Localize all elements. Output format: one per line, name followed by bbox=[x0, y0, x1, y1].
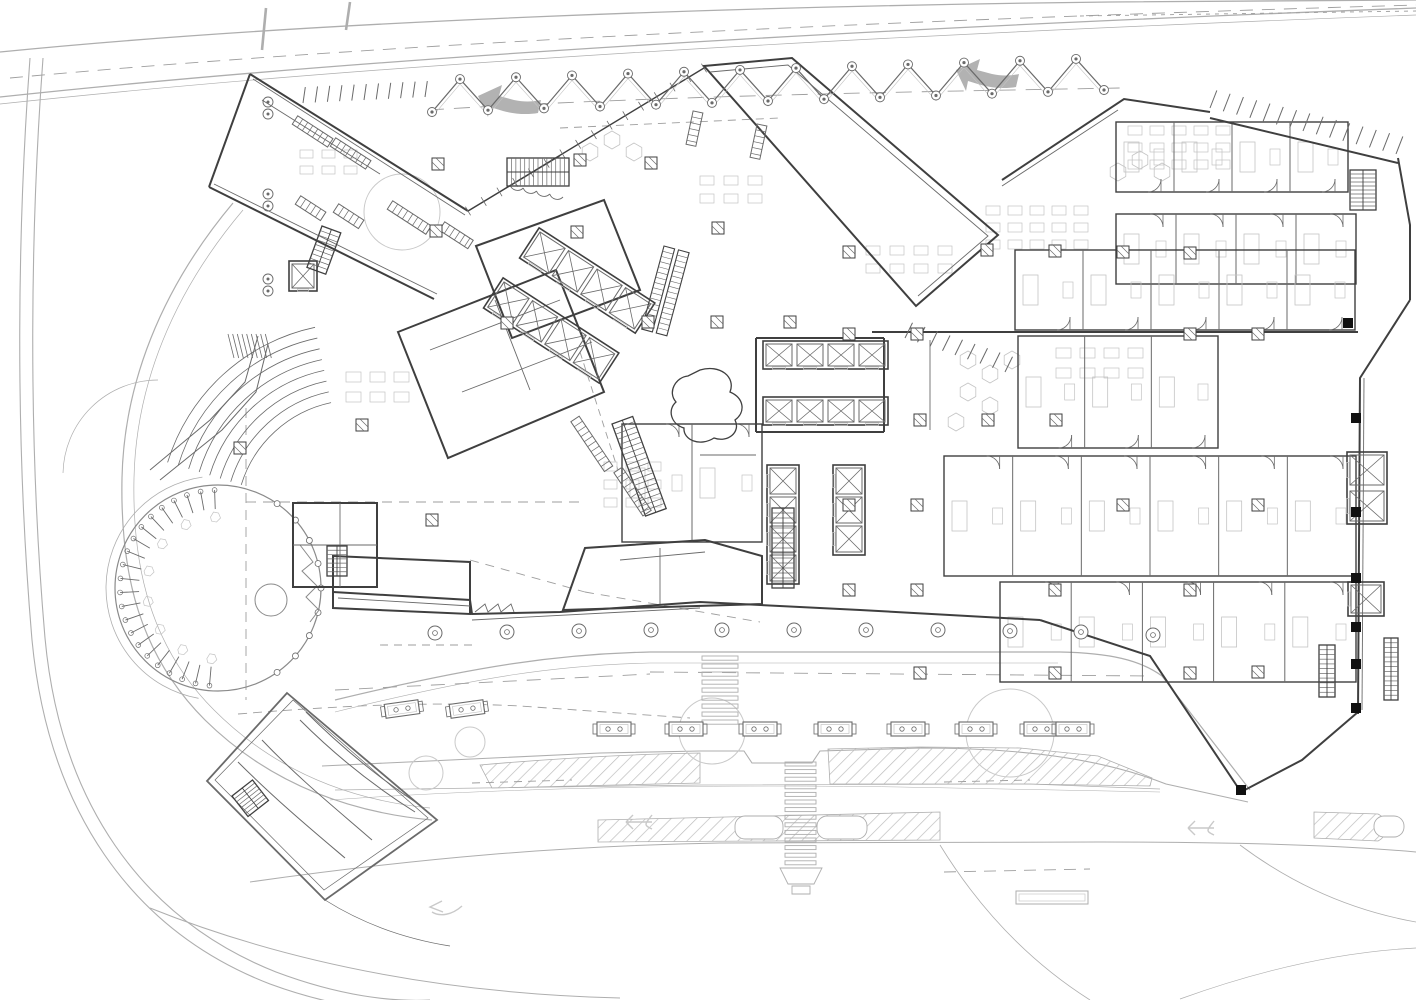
floor-plan-page bbox=[0, 0, 1416, 1000]
roads-layer bbox=[0, 0, 1416, 1000]
site-plan-drawing bbox=[0, 0, 1416, 1000]
crosswalks-layer bbox=[702, 656, 822, 894]
landscape-trees-layer bbox=[364, 174, 1054, 790]
circular-courtyard-layer bbox=[106, 477, 324, 698]
columns-layer bbox=[234, 97, 1361, 795]
benches-layer bbox=[380, 699, 1094, 904]
amphitheater-steps-layer bbox=[150, 327, 331, 485]
traffic-medians-layer bbox=[480, 747, 1404, 842]
parking-ramp-layer bbox=[207, 693, 450, 946]
